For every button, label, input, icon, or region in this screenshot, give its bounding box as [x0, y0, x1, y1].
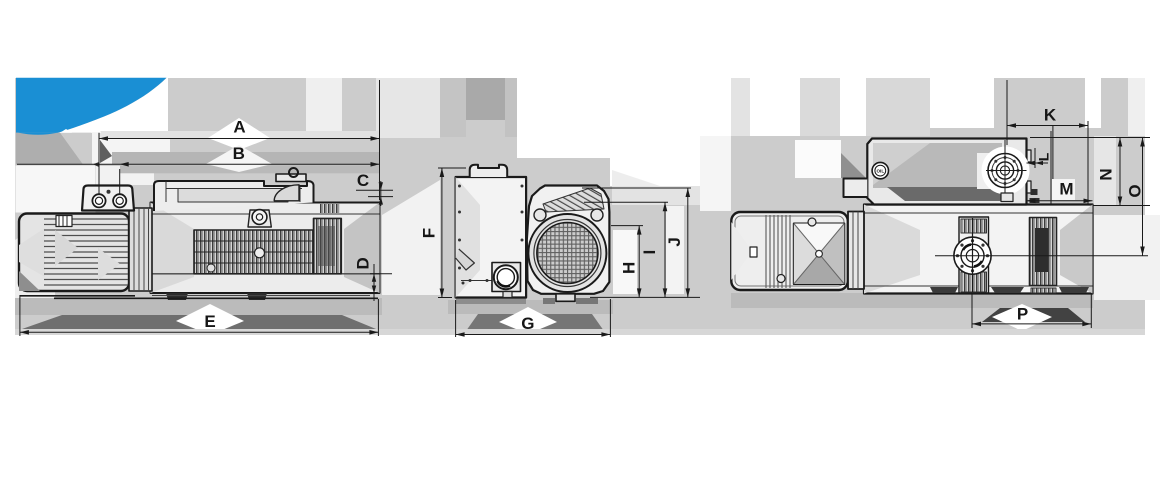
- svg-text:H: H: [620, 262, 639, 274]
- svg-text:C: C: [357, 171, 369, 190]
- svg-text:P: P: [1017, 305, 1028, 324]
- svg-text:B: B: [233, 144, 245, 163]
- svg-text:N: N: [1097, 168, 1116, 180]
- svg-text:E: E: [204, 312, 215, 331]
- svg-text:F: F: [420, 228, 439, 238]
- svg-text:D: D: [354, 257, 373, 269]
- svg-text:O: O: [1126, 184, 1145, 197]
- svg-text:M: M: [1059, 180, 1073, 199]
- svg-text:A: A: [233, 118, 245, 137]
- svg-text:OIL: OIL: [876, 169, 884, 174]
- svg-text:G: G: [521, 314, 534, 333]
- svg-text:L: L: [1036, 152, 1052, 161]
- svg-text:J: J: [665, 237, 684, 246]
- svg-text:I: I: [640, 250, 659, 255]
- svg-text:K: K: [1044, 106, 1057, 125]
